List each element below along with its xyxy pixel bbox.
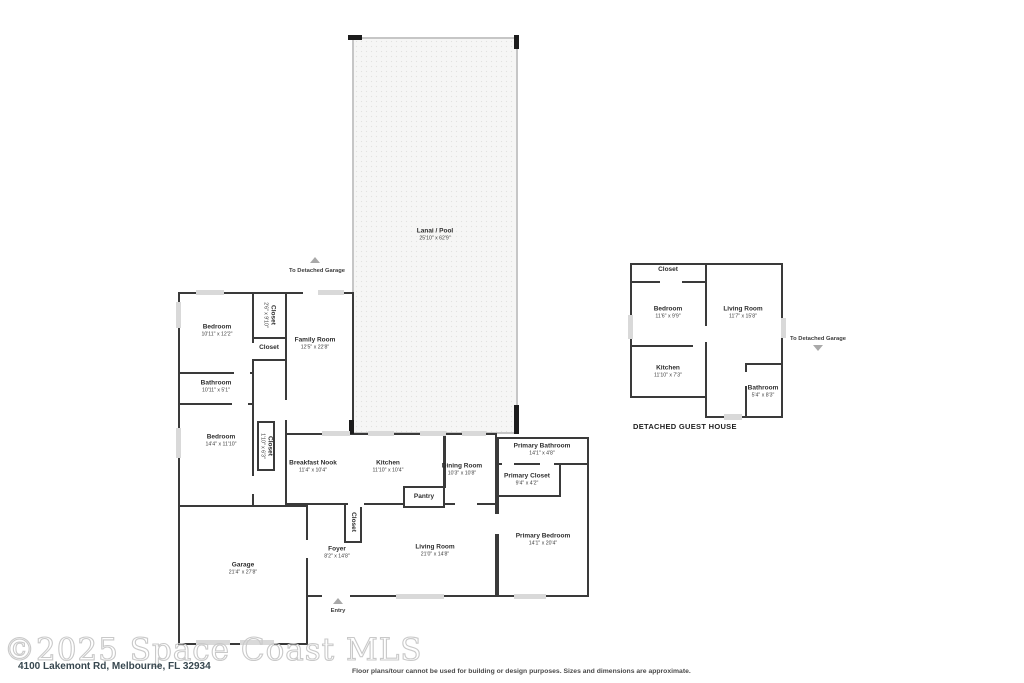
window <box>196 290 224 295</box>
room-label-gh-bathroom: Bathroom 5'4" x 8'3" <box>748 384 779 399</box>
window <box>396 594 444 599</box>
door-opening <box>234 370 250 375</box>
arrow-up-icon <box>333 598 343 604</box>
wall-segment <box>514 35 519 49</box>
door-opening <box>693 344 705 349</box>
room-label-pantry: Pantry <box>414 493 434 501</box>
window <box>514 594 546 599</box>
room-label-family-room: Family Room 12'5" x 22'8" <box>295 336 336 351</box>
window <box>781 318 786 338</box>
door-opening <box>284 400 290 420</box>
room-label-breakfast-nook: Breakfast Nook 11'4" x 10'4" <box>289 459 337 474</box>
room-family-room <box>285 292 354 435</box>
window <box>628 315 633 339</box>
room-bedroom-2 <box>178 403 254 507</box>
wall-segment <box>348 35 362 40</box>
property-address: 4100 Lakemont Rd, Melbourne, FL 32934 <box>18 661 211 672</box>
room-label-foyer: Foyer 8'2" x 14'8" <box>324 545 350 560</box>
window <box>724 414 742 420</box>
room-label-primary-bathroom: Primary Bathroom 14'1" x 4'8" <box>514 442 571 457</box>
door-opening <box>232 401 248 406</box>
room-label-gh-bedroom: Bedroom 11'6" x 9'9" <box>654 305 683 320</box>
door-opening <box>540 461 554 466</box>
floor-plan: Lanai / Pool 25'10" x 62'9" To Detached … <box>0 0 1024 683</box>
wall-segment <box>443 433 446 488</box>
window <box>176 428 181 458</box>
door-opening <box>502 461 514 466</box>
disclaimer-text: Floor plans/tour cannot be used for buil… <box>352 668 691 675</box>
room-label-lanai: Lanai / Pool 25'10" x 62'9" <box>417 227 453 242</box>
room-label-gh-kitchen: Kitchen 11'10" x 7'3" <box>654 364 682 379</box>
window <box>322 431 350 436</box>
guest-house-title: DETACHED GUEST HOUSE <box>633 422 737 431</box>
door-opening <box>305 540 311 558</box>
room-label-living-room: Living Room 21'0" x 14'8" <box>415 543 454 558</box>
to-detached-garage-label: To Detached Garage <box>289 268 345 274</box>
entry-label: Entry <box>331 608 346 614</box>
wall-segment <box>514 405 519 434</box>
room-label-garage: Garage 21'4" x 27'8" <box>229 561 257 576</box>
window <box>420 431 446 436</box>
room-label-closet-bedroom2: Closet 1'10" x 6'3" <box>258 433 273 459</box>
room-label-dining-room: Dining Room 10'3" x 10'8" <box>442 462 482 477</box>
window <box>368 431 394 436</box>
room-label-primary-bedroom: Primary Bedroom 14'1" x 20'4" <box>516 532 571 547</box>
room-label-closet-foyer: Closet <box>349 512 357 532</box>
arrow-down-icon <box>813 345 823 351</box>
window <box>462 431 486 436</box>
door-opening <box>660 281 682 285</box>
door-opening <box>348 501 364 507</box>
room-label-kitchen: Kitchen 11'10" x 10'4" <box>373 459 404 474</box>
room-label-gh-closet: Closet <box>658 266 678 274</box>
room-label-closet-small: Closet <box>259 344 279 352</box>
door-opening <box>703 326 710 342</box>
arrow-up-icon <box>310 257 320 263</box>
window <box>318 290 344 295</box>
door-opening <box>250 476 255 494</box>
door-opening <box>455 501 477 507</box>
room-label-closet-hall: Closet 2'6" x 9'10" <box>261 302 276 328</box>
gh-to-detached-garage-label: To Detached Garage <box>790 336 846 342</box>
door-opening <box>495 514 501 534</box>
room-label-primary-closet: Primary Closet 9'4" x 4'2" <box>504 472 550 487</box>
door-opening <box>250 343 255 359</box>
room-label-bathroom-1: Bathroom 10'11" x 5'1" <box>201 379 232 394</box>
window <box>176 302 181 328</box>
room-label-bedroom-1: Bedroom 10'11" x 12'2" <box>202 323 233 338</box>
room-label-bedroom-2: Bedroom 14'4" x 11'10" <box>206 433 237 448</box>
room-label-gh-living-room: Living Room 11'7" x 15'8" <box>723 305 762 320</box>
